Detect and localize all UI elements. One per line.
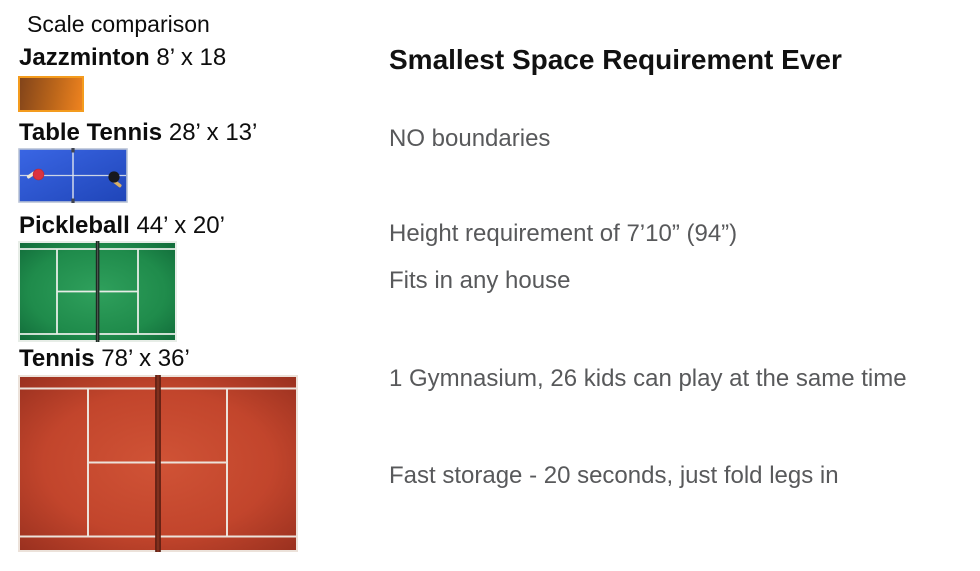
info-point-fast-storage: Fast storage - 20 seconds, just fold leg… bbox=[389, 461, 839, 491]
court-label-tennis: Tennis78’ x 36’ bbox=[19, 344, 190, 374]
court-dimensions: 8’ x 18 bbox=[156, 44, 226, 71]
court-label-pickleball: Pickleball44’ x 20’ bbox=[19, 211, 225, 241]
info-heading: Smallest Space Requirement Ever bbox=[389, 42, 842, 78]
table-tennis-table-image bbox=[18, 148, 128, 203]
tennis-court-image bbox=[18, 375, 298, 552]
pickleball-court-image bbox=[18, 241, 177, 342]
court-name: Tennis bbox=[19, 345, 95, 372]
slide: Scale comparison Jazzminton8’ x 18 Table… bbox=[0, 0, 980, 571]
scale-comparison-title: Scale comparison bbox=[27, 10, 210, 39]
court-label-jazzminton: Jazzminton8’ x 18 bbox=[19, 43, 226, 73]
court-name: Table Tennis bbox=[19, 119, 162, 146]
info-point-height-requirement: Height requirement of 7’10” (94”) bbox=[389, 219, 737, 249]
info-point-fits-any-house: Fits in any house bbox=[389, 266, 570, 296]
info-point-no-boundaries: NO boundaries bbox=[389, 124, 550, 154]
info-point-gymnasium: 1 Gymnasium, 26 kids can play at the sam… bbox=[389, 364, 907, 394]
net-post-bottom bbox=[71, 199, 74, 204]
court-dimensions: 44’ x 20’ bbox=[136, 212, 225, 239]
court-dimensions: 28’ x 13’ bbox=[169, 119, 258, 146]
court-name: Jazzminton bbox=[19, 44, 150, 71]
court-label-table-tennis: Table Tennis28’ x 13’ bbox=[19, 118, 257, 148]
jazzminton-court-swatch bbox=[18, 76, 84, 112]
court-name: Pickleball bbox=[19, 212, 130, 239]
court-dimensions: 78’ x 36’ bbox=[101, 345, 190, 372]
net-line bbox=[155, 375, 161, 552]
net-post-top bbox=[71, 148, 74, 153]
